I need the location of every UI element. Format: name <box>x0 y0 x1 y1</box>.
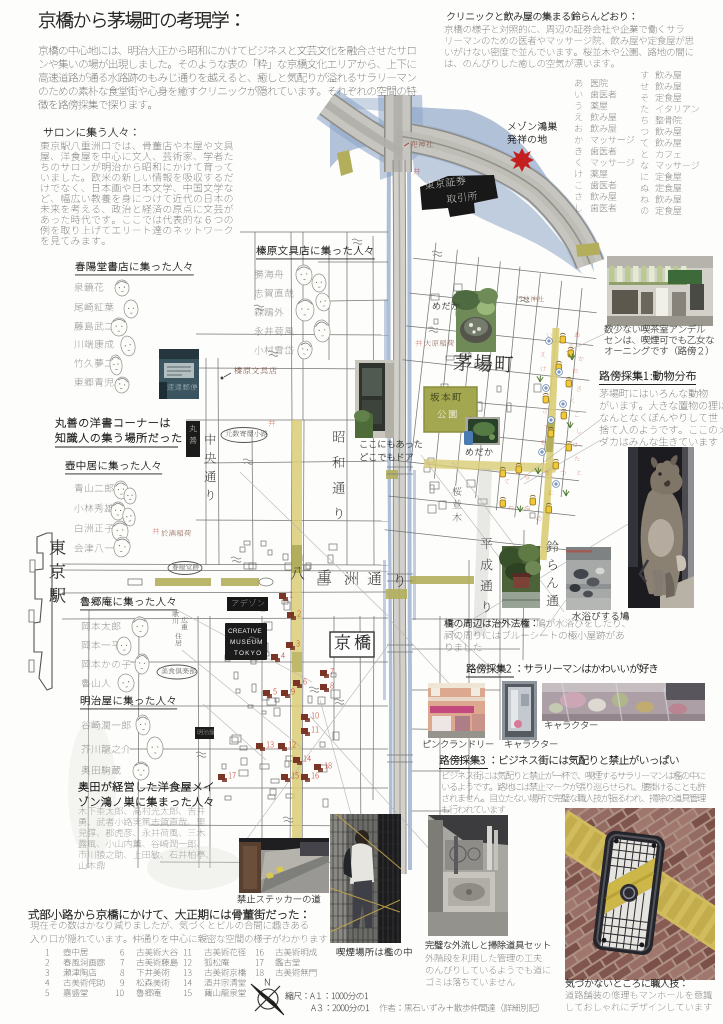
svg-text:MUSEUM: MUSEUM <box>230 639 263 646</box>
svg-text:TOKYO: TOKYO <box>234 650 262 657</box>
svg-text:CREATIVE: CREATIVE <box>228 628 262 635</box>
